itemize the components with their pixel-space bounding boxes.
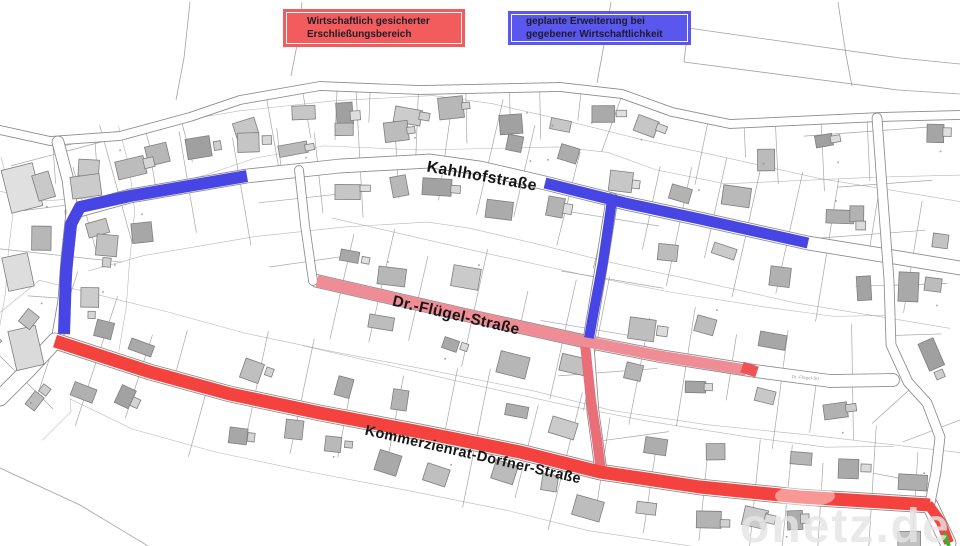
building [237, 133, 259, 153]
parcel-mark [450, 464, 452, 466]
building [657, 243, 678, 261]
parcel-line [903, 431, 933, 442]
building [264, 367, 274, 377]
parcel-line [418, 256, 427, 297]
building [633, 115, 659, 138]
building [461, 102, 470, 109]
building [850, 206, 864, 222]
road-surface [0, 86, 960, 141]
parcel-line [913, 201, 922, 253]
building [548, 416, 578, 440]
building [934, 369, 946, 380]
parcel-mark [305, 157, 307, 159]
parcel-mark [119, 150, 121, 152]
building [213, 141, 221, 151]
parcel-line [521, 291, 528, 321]
parcel-mark [530, 160, 532, 162]
parcel-mark [936, 305, 938, 307]
map-canvas: Kahlhofstraße Dr.-Flügel-Straße Kommerzi… [0, 0, 960, 546]
building [304, 143, 314, 151]
parcel-mark [923, 472, 925, 474]
building [563, 203, 573, 214]
parcel-mark [333, 456, 335, 458]
parcel-line [319, 175, 323, 213]
parcel-line [188, 395, 205, 456]
parcel-mark [763, 163, 765, 165]
building [460, 342, 469, 351]
legend-planned: geplante Erweiterung bei gegebener Wirts… [508, 11, 691, 45]
parcel-line [676, 367, 685, 427]
building [94, 319, 115, 339]
parcel-line [73, 257, 122, 262]
parcel-line [301, 339, 314, 401]
parcel-line [732, 236, 746, 297]
parcel-line [872, 390, 909, 423]
parcel-line [942, 410, 960, 427]
building [451, 185, 461, 193]
parcel-mark [526, 112, 528, 114]
building [0, 336, 2, 347]
building [131, 222, 153, 244]
building [557, 144, 580, 164]
building [485, 199, 514, 220]
building [339, 249, 359, 263]
building [361, 256, 370, 264]
parcel-line [867, 122, 870, 181]
field-boundary-line [688, 28, 960, 64]
parcel-mark [835, 200, 837, 202]
parcel-line [653, 166, 661, 201]
parcel-line [605, 278, 663, 288]
parcel-mark [842, 432, 844, 434]
legend-planned-line1: geplante Erweiterung bei [526, 15, 691, 28]
parcel-line [872, 426, 876, 494]
parcel-line [853, 387, 854, 440]
parcel-line [896, 334, 942, 335]
building [377, 266, 407, 287]
building [284, 419, 304, 440]
parcel-line [565, 280, 576, 331]
parcel-line [267, 100, 279, 167]
parcel-line [176, 330, 187, 371]
watermark-text: onetz.de [740, 500, 951, 546]
building [228, 427, 248, 445]
parcel-line [732, 334, 736, 360]
secured-main-street [55, 341, 930, 505]
parcel-line [240, 184, 250, 245]
building [374, 449, 402, 476]
building [335, 185, 360, 200]
parcel-mark [641, 139, 643, 141]
building [754, 387, 776, 404]
parcel-line [615, 219, 659, 226]
building [419, 112, 430, 121]
building [592, 106, 615, 123]
building [624, 362, 644, 382]
parcel-line [561, 271, 593, 276]
parcel-line [269, 262, 305, 267]
building [757, 149, 774, 171]
building [506, 134, 524, 152]
legend-secured-line2: Erschließungsbereich [307, 28, 465, 41]
parcel-line [829, 179, 839, 240]
parcel-line [810, 386, 816, 433]
building [324, 436, 342, 453]
parcel-mark [387, 261, 389, 263]
parcel-line [852, 324, 853, 374]
building [334, 376, 354, 399]
field-boundary-line [684, 62, 960, 94]
parcel-line [466, 94, 467, 144]
parcel-line [817, 234, 880, 239]
building [918, 338, 945, 371]
building [70, 174, 102, 200]
building [685, 381, 706, 393]
building [608, 170, 633, 193]
parcel-line [190, 193, 197, 233]
building [572, 495, 605, 522]
building [390, 175, 409, 198]
building [656, 326, 668, 337]
field-boundary-line [0, 468, 148, 546]
parcel-line [642, 215, 649, 249]
building [927, 124, 944, 143]
building [88, 311, 95, 318]
parcel-line [356, 91, 360, 158]
parcel-line [477, 369, 490, 435]
parcel-mark [716, 309, 718, 311]
building [721, 185, 751, 208]
building [644, 437, 668, 456]
parcel-line [776, 126, 779, 184]
building [720, 520, 730, 528]
building [344, 441, 352, 448]
building [628, 317, 657, 342]
parcel-mark [444, 358, 446, 360]
building [861, 464, 871, 472]
parcel-mark [102, 291, 104, 293]
parcel-mark [41, 303, 43, 305]
building [924, 277, 942, 292]
parcel-line [259, 199, 298, 203]
building [694, 315, 717, 336]
building [499, 114, 523, 135]
secured-fluegel-tip [742, 367, 757, 372]
parcel-mark [552, 125, 554, 127]
parcel-line [695, 124, 708, 185]
building [8, 325, 44, 370]
building [898, 272, 919, 302]
building [262, 136, 272, 145]
parcel-line [11, 154, 55, 166]
parcel-line [821, 463, 823, 490]
parcel-line [705, 229, 712, 258]
building [790, 451, 812, 465]
parcel-mark [940, 151, 942, 153]
building [451, 265, 482, 291]
parcel-line [578, 94, 581, 121]
parcel-line [369, 93, 370, 123]
building [616, 110, 627, 117]
building [823, 402, 849, 420]
building [830, 135, 841, 143]
building [335, 123, 353, 136]
building [636, 501, 657, 515]
building [360, 185, 370, 191]
building [706, 443, 725, 459]
building [81, 287, 99, 307]
building [422, 178, 452, 197]
building [391, 389, 409, 411]
building [943, 128, 952, 137]
parcel-mark [837, 162, 839, 164]
building [496, 351, 530, 379]
parcel-line [28, 296, 58, 298]
building [758, 331, 787, 350]
parcel-mark [414, 137, 416, 139]
parcel-line [524, 125, 535, 171]
building [70, 382, 97, 404]
cadastral-map: Kahlhofstraße Dr.-Flügel-Straße Kommerzi… [0, 0, 960, 546]
building [25, 391, 44, 411]
parcel-line [330, 293, 341, 339]
building [383, 120, 409, 142]
building [350, 110, 361, 120]
parcel-line [550, 343, 562, 399]
parcel-line [890, 230, 925, 233]
building [838, 459, 859, 479]
legend-secured-line1: Wirtschaftlich gesicherter [307, 15, 465, 28]
parcel-mark [591, 122, 593, 124]
building [239, 358, 264, 383]
field-boundary-line [838, 2, 852, 86]
parcel-line [445, 368, 457, 429]
building [505, 403, 529, 418]
building [696, 511, 721, 528]
parcel-mark [30, 402, 32, 404]
legend-planned-line2: gegebener Wirtschaftlichkeit [526, 28, 691, 41]
building [437, 96, 464, 120]
parcel-line [726, 374, 730, 401]
parcel-line [756, 440, 761, 485]
parcel-line [744, 128, 745, 158]
parcel-line [540, 92, 541, 139]
parcel-line [528, 405, 538, 446]
building [95, 234, 118, 257]
parcel-mark [547, 159, 549, 161]
parcel-mark [698, 189, 700, 191]
parcel-line [0, 248, 61, 255]
building [422, 463, 450, 487]
planned-segment-west-l [64, 176, 247, 334]
building [115, 155, 147, 179]
parcel-mark [478, 264, 480, 266]
parcel-line [409, 310, 416, 340]
parcel-line [361, 172, 364, 218]
building [856, 221, 866, 230]
legend-secured: Wirtschaftlich gesicherter Erschließungs… [283, 9, 465, 47]
building [932, 233, 949, 249]
parcel-mark [46, 206, 48, 208]
building [407, 126, 416, 133]
building [2, 253, 35, 292]
building [769, 266, 792, 288]
building [143, 157, 155, 169]
building [711, 242, 737, 260]
building [442, 337, 460, 353]
building [845, 403, 856, 412]
building [898, 474, 928, 491]
building [632, 180, 641, 189]
parcel-mark [141, 214, 143, 216]
building [546, 196, 566, 218]
building [18, 308, 39, 329]
field-boundary-line [176, 2, 190, 100]
building [856, 276, 871, 301]
building [655, 123, 667, 133]
building [668, 184, 692, 204]
planned-connector-north [589, 200, 612, 338]
parcel-line [816, 253, 827, 321]
building [32, 226, 52, 250]
building [247, 432, 255, 442]
building [102, 257, 111, 267]
building [278, 141, 309, 157]
parcel-line [883, 127, 928, 130]
secured-fluegel-east [583, 341, 746, 370]
building [292, 105, 316, 120]
building [185, 136, 212, 160]
parcel-mark [114, 264, 116, 266]
parcel-line [887, 180, 932, 183]
building [704, 383, 712, 390]
